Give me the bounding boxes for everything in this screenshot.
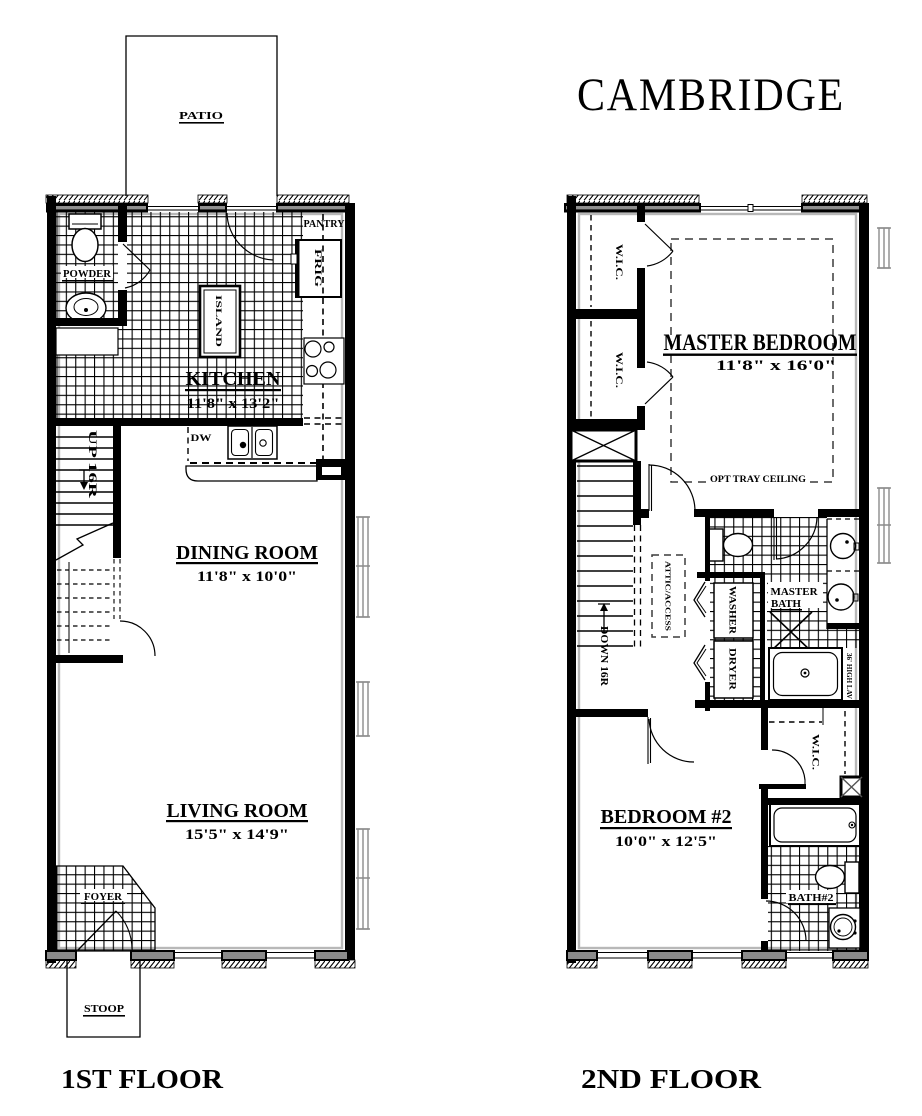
svg-text:ISLAND: ISLAND — [214, 295, 224, 347]
svg-text:DW: DW — [191, 434, 213, 444]
svg-text:CAMBRIDGE: CAMBRIDGE — [577, 69, 845, 121]
svg-text:UP 16R: UP 16R — [86, 430, 100, 499]
svg-text:PATIO: PATIO — [179, 110, 224, 122]
svg-text:STOOP: STOOP — [84, 1004, 125, 1015]
svg-text:BEDROOM #2: BEDROOM #2 — [601, 806, 732, 828]
svg-text:15'5" x 14'9": 15'5" x 14'9" — [185, 827, 289, 843]
svg-text:POWDER: POWDER — [63, 269, 111, 280]
svg-text:11'8" x 10'0": 11'8" x 10'0" — [197, 569, 297, 585]
svg-text:W.I.C.: W.I.C. — [613, 244, 623, 280]
svg-text:LIVING ROOM: LIVING ROOM — [167, 800, 308, 822]
svg-text:W.I.C.: W.I.C. — [613, 352, 623, 388]
svg-text:WASHER: WASHER — [728, 586, 738, 635]
svg-text:11'8" x 16'0": 11'8" x 16'0" — [716, 358, 836, 374]
svg-text:10'0" x 12'5": 10'0" x 12'5" — [615, 834, 717, 850]
svg-text:BATH#2: BATH#2 — [789, 892, 835, 904]
svg-text:2ND FLOOR: 2ND FLOOR — [581, 1064, 762, 1094]
svg-text:36' HIGH LAV: 36' HIGH LAV — [845, 653, 854, 700]
svg-text:DRYER: DRYER — [728, 648, 738, 691]
svg-text:1ST FLOOR: 1ST FLOOR — [61, 1064, 224, 1094]
svg-text:MASTER BEDROOM: MASTER BEDROOM — [664, 330, 857, 355]
svg-text:BATH: BATH — [771, 598, 801, 610]
svg-text:DOWN 16R: DOWN 16R — [598, 626, 610, 687]
svg-text:FRIG: FRIG — [313, 249, 323, 287]
svg-text:DINING ROOM: DINING ROOM — [176, 542, 318, 564]
svg-text:PANTRY: PANTRY — [304, 219, 346, 230]
svg-text:ATTIC/ACCESS: ATTIC/ACCESS — [664, 561, 673, 631]
svg-text:MASTER: MASTER — [771, 586, 819, 598]
svg-text:KITCHEN: KITCHEN — [186, 368, 282, 390]
svg-text:W.I.C.: W.I.C. — [810, 734, 820, 770]
svg-text:FOYER: FOYER — [84, 892, 123, 903]
svg-text:OPT TRAY CEILING: OPT TRAY CEILING — [710, 475, 807, 485]
svg-text:11'8" x 13'2": 11'8" x 13'2" — [187, 396, 280, 412]
